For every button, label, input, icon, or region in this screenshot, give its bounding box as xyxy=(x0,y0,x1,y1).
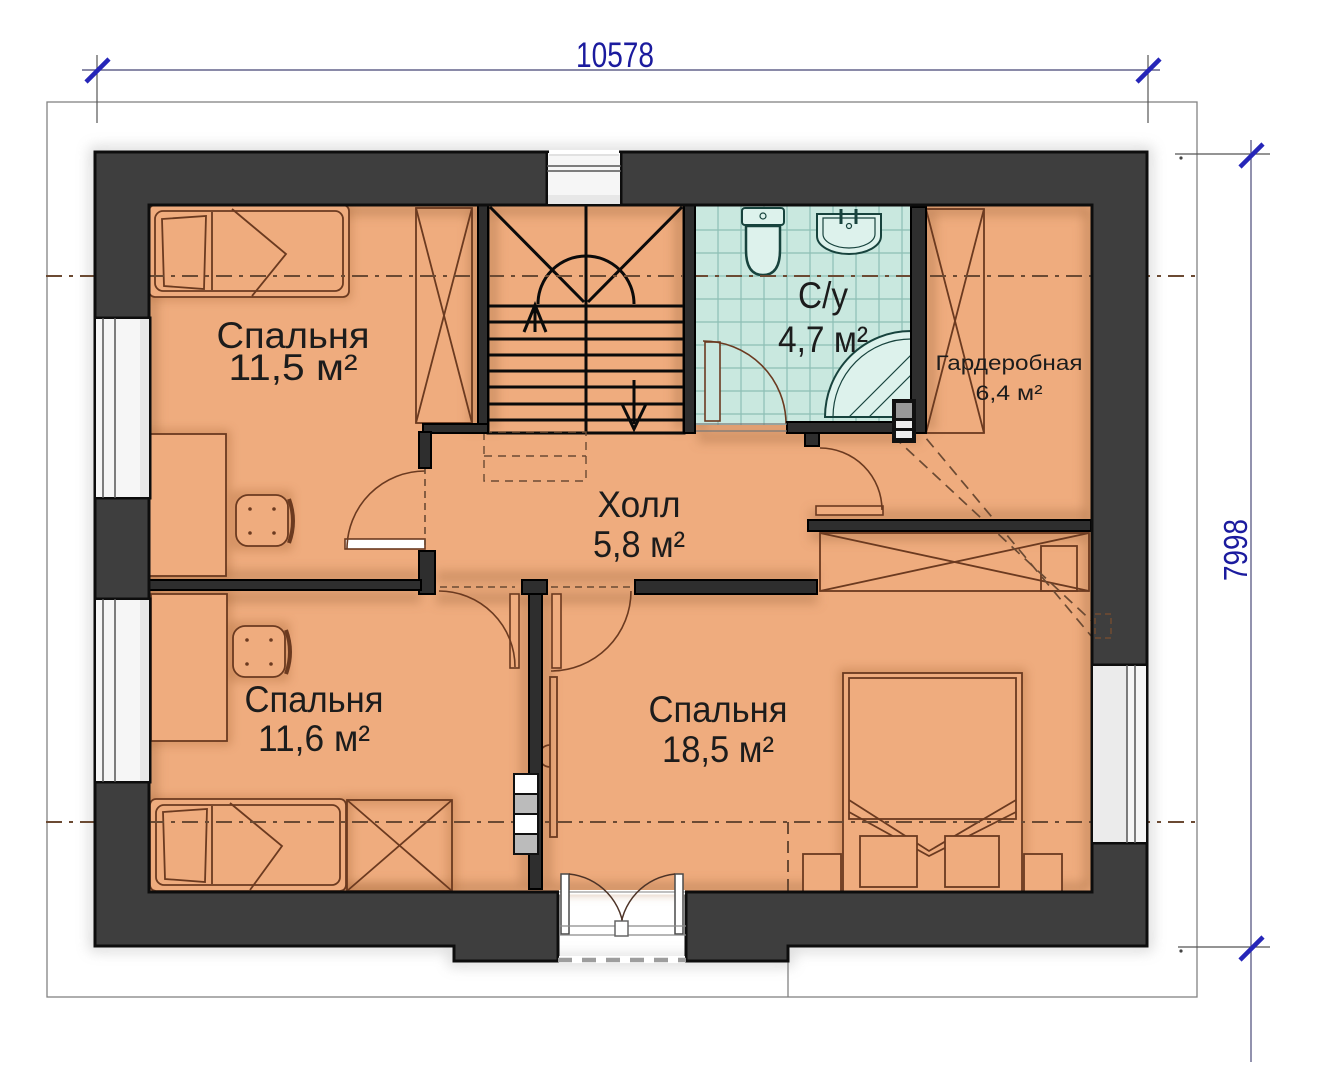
svg-text:10578: 10578 xyxy=(576,36,654,75)
svg-text:7998: 7998 xyxy=(1217,519,1254,581)
svg-text:6,4 м²: 6,4 м² xyxy=(976,382,1043,405)
svg-text:11,5 м²: 11,5 м² xyxy=(229,347,358,388)
svg-text:5,8 м²: 5,8 м² xyxy=(593,524,685,565)
svg-text:11,6 м²: 11,6 м² xyxy=(258,718,370,759)
svg-text:Спальня: Спальня xyxy=(245,679,384,720)
svg-text:Спальня: Спальня xyxy=(649,689,788,730)
svg-text:Гардеробная: Гардеробная xyxy=(936,352,1083,375)
svg-text:С/у: С/у xyxy=(798,275,848,316)
svg-text:18,5 м²: 18,5 м² xyxy=(662,729,774,770)
svg-text:4,7 м²: 4,7 м² xyxy=(778,319,868,360)
svg-text:Холл: Холл xyxy=(598,484,681,525)
